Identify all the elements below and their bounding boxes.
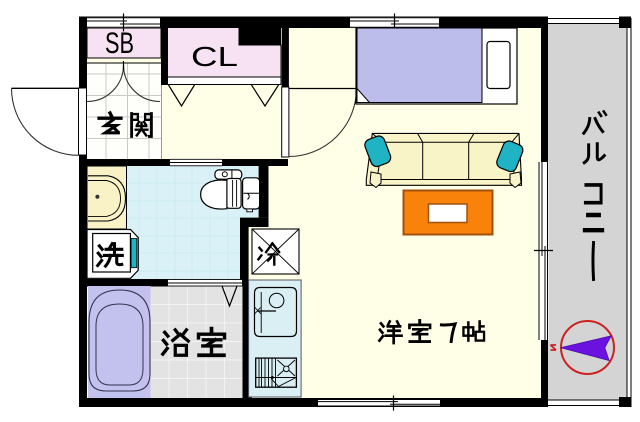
svg-text:CL: CL — [191, 41, 238, 72]
svg-text:SB: SB — [105, 27, 134, 60]
